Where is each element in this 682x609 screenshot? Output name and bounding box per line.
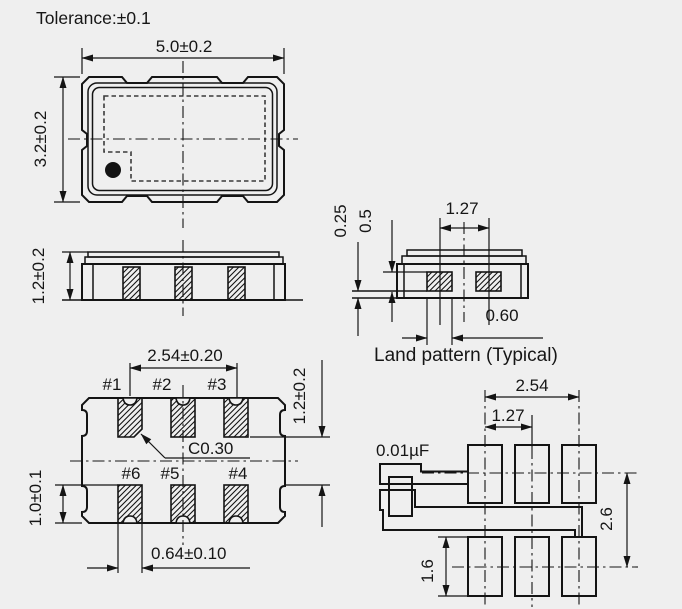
- land-pattern-view: 2.54 1.27 2.6 1.6 0.01µF: [376, 376, 638, 607]
- row-gap-dim: 1.2±0.2: [290, 368, 309, 425]
- mount-section-view: 1.27 0.5 0.25 0.60 Land pattern (Typical…: [331, 199, 558, 366]
- top-view: 5.0±0.2 3.2±0.2: [31, 37, 298, 228]
- chamfer-leader-arrow: [141, 434, 165, 458]
- land-pattern-caption: Land pattern (Typical): [374, 345, 558, 366]
- side-view-lid-step: [85, 257, 283, 264]
- pad-6-label: #6: [122, 464, 141, 483]
- castellation-notch: [229, 398, 243, 405]
- pin1-marker-dot: [105, 162, 121, 178]
- castellation-notch: [229, 516, 243, 523]
- pad-1-label: #1: [103, 375, 122, 394]
- package-dimension-drawing: Tolerance:±0.1 5.0±0.2 3.2±0.2 1.2±0.2: [0, 0, 682, 609]
- land-row-pitch-dim: 2.6: [597, 507, 616, 531]
- electrode-height-dim: 0.5: [356, 209, 375, 233]
- side-pad-1: [123, 267, 140, 300]
- bottom-pitch-dim: 2.54±0.20: [147, 346, 223, 365]
- pad-5-label: #5: [161, 464, 180, 483]
- top-view-width-dim: 5.0±0.2: [156, 37, 213, 56]
- pad-2-label: #2: [153, 375, 172, 394]
- land-thickness-dim: 0.25: [331, 204, 350, 237]
- side-view-height-dim: 1.2±0.2: [29, 248, 48, 305]
- castellation-notch: [123, 516, 137, 523]
- section-pad-width-dim: 0.60: [485, 306, 518, 325]
- top-view-height-dim: 3.2±0.2: [31, 111, 50, 168]
- ext-line: [118, 523, 142, 573]
- side-view: 1.2±0.2: [29, 240, 303, 316]
- bottom-pad-width-dim: 0.64±0.10: [151, 544, 227, 563]
- capacitor-value-label: 0.01µF: [376, 441, 429, 460]
- pad-4-label: #4: [229, 464, 248, 483]
- tolerance-note: Tolerance:±0.1: [36, 8, 151, 28]
- pad-3-label: #3: [208, 375, 227, 394]
- capacitor-body: [389, 477, 412, 516]
- cap-trace-to-pad1: [380, 464, 468, 484]
- ground-trace: [380, 490, 582, 537]
- land-outer-pitch-dim: 2.54: [515, 376, 548, 395]
- land-inner-pitch-dim: 1.27: [491, 406, 524, 425]
- bottom-pad-height-dim: 1.0±0.1: [26, 470, 45, 527]
- chamfer-dim: C0.30: [188, 439, 233, 458]
- castellation-notch: [123, 398, 137, 405]
- land-pad-height-dim: 1.6: [418, 559, 437, 583]
- technical-drawing-page: Tolerance:±0.1 5.0±0.2 3.2±0.2 1.2±0.2: [0, 0, 682, 609]
- section-castellation-lines: [404, 264, 521, 298]
- section-pitch-dim: 1.27: [445, 199, 478, 218]
- section-body: [397, 264, 528, 298]
- bottom-view: #1 #2 #3 #6 #5 #4 2.54±0.20 1.2±0.2 1.0±…: [26, 346, 330, 573]
- side-pad-3: [228, 267, 245, 300]
